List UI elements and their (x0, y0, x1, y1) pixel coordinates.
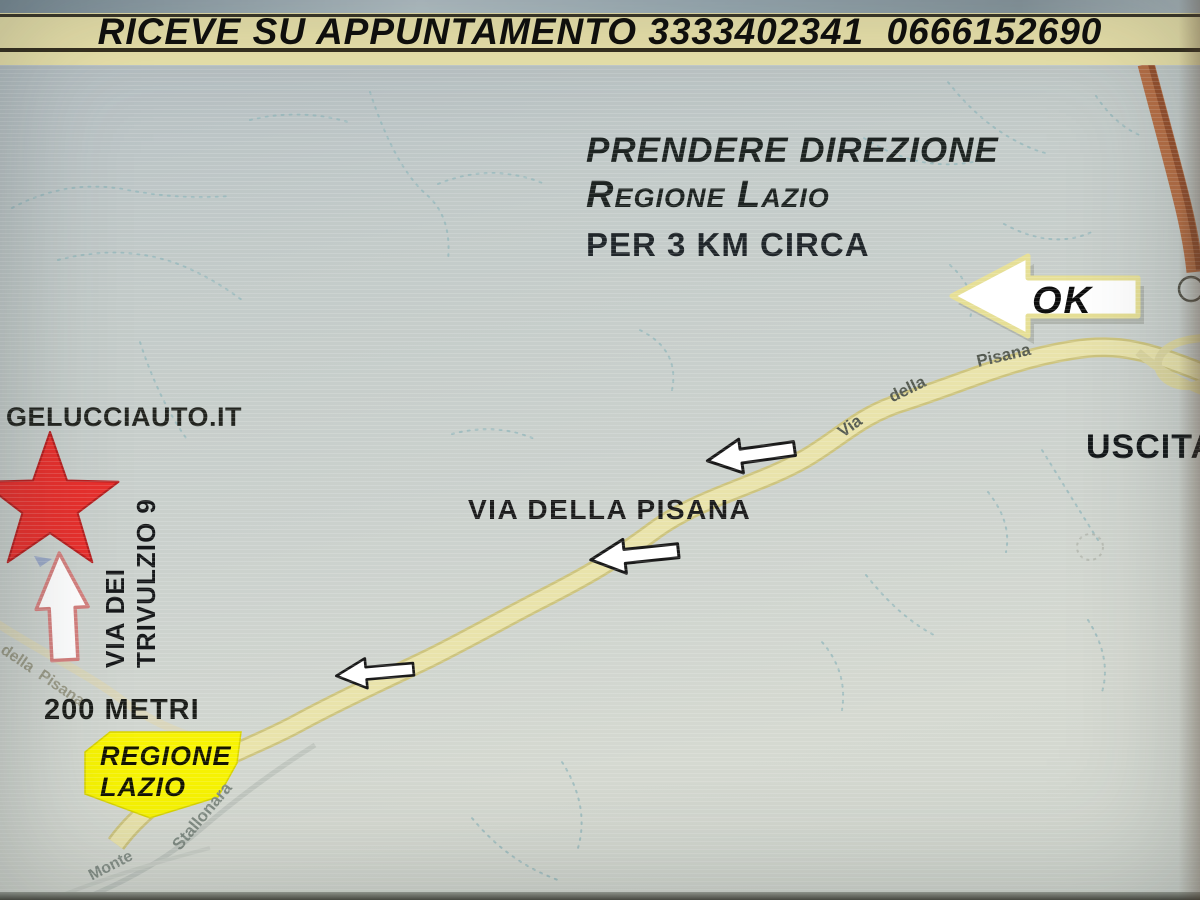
main-road-caption: VIA DELLA PISANA (468, 494, 751, 526)
map-scribble-mark (1077, 534, 1103, 560)
map-marker-icon (34, 556, 52, 567)
junction-circle-icon (1179, 277, 1200, 301)
directions-text-block: PRENDERE DIREZIONE Regione Lazio PER 3 K… (586, 130, 999, 264)
directions-line-2: Regione Lazio (586, 172, 999, 218)
appointment-banner-text: RICEVE SU APPUNTAMENTO 3333402341 066615… (0, 16, 1200, 48)
ok-arrow-label: OK (1032, 280, 1093, 323)
street-address-line-1: VIA DEI (100, 438, 131, 668)
up-arrow-icon (33, 552, 91, 662)
exit-label: USCITA (1086, 428, 1200, 467)
road-monte (55, 848, 210, 898)
appointment-banner: RICEVE SU APPUNTAMENTO 3333402341 066615… (0, 13, 1200, 65)
photo-bottom-edge (0, 892, 1200, 900)
street-address-line-2: TRIVULZIO 9 (131, 438, 162, 668)
direction-map-photo: Via della Pisana della Pisana Stallonara… (0, 0, 1200, 900)
badge-line-2: LAZIO (100, 772, 232, 803)
distance-label: 200 METRI (44, 694, 200, 727)
directions-line-1: PRENDERE DIREZIONE (586, 130, 999, 172)
directions-line-3: PER 3 KM CIRCA (586, 226, 999, 264)
road-gra-orange (1146, 64, 1195, 272)
regione-lazio-badge-text: REGIONE LAZIO (100, 741, 232, 803)
street-address-label: VIA DEI TRIVULZIO 9 (100, 438, 162, 668)
badge-line-1: REGIONE (100, 741, 232, 772)
website-label: GELUCCIAUTO.IT (6, 402, 242, 433)
banner-underline-rule (0, 48, 1200, 52)
